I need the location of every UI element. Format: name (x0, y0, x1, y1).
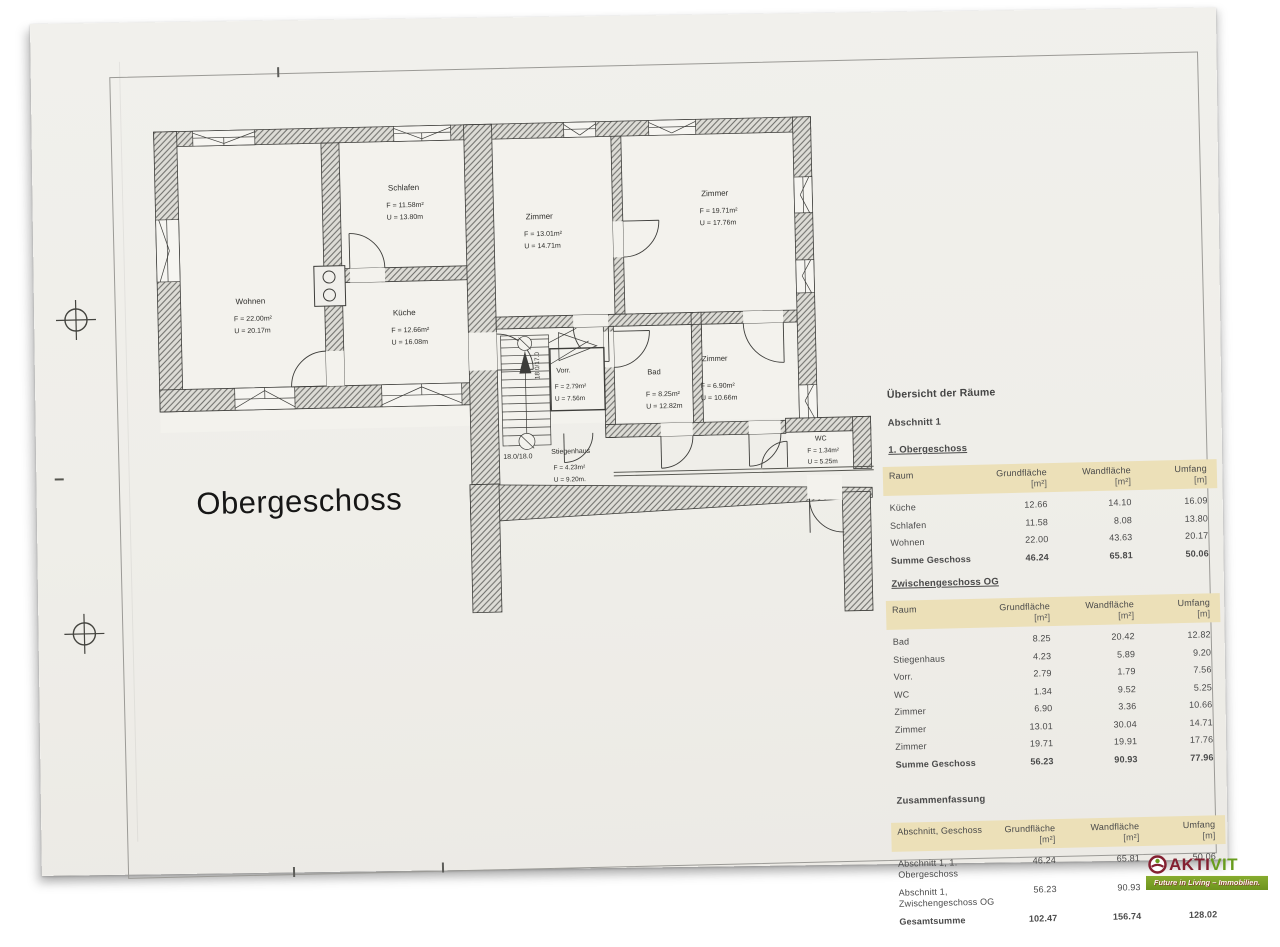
svg-text:U = 7.56m: U = 7.56m (555, 395, 585, 403)
col-unit: [m²] (1003, 834, 1055, 846)
scanned-paper-sheet: 18.0/18.0 18.0/17.0 Wohnen F = 22.00m² U… (30, 7, 1228, 875)
cell-room: Stiegenhaus (893, 652, 997, 665)
registration-mark (62, 611, 107, 656)
svg-text:U = 10.66m: U = 10.66m (701, 394, 738, 402)
cell-abschnitt: Gesamtsumme (899, 914, 1003, 927)
cell-room: Küche (890, 500, 994, 513)
cell-wandflaeche: 8.08 (1050, 515, 1132, 527)
cell-grundflaeche: 11.58 (996, 517, 1048, 529)
cell-wandflaeche: 1.79 (1053, 666, 1135, 678)
cell-wandflaeche: 65.81 (1051, 550, 1133, 562)
cell-grundflaeche: 46.24 (997, 552, 1049, 564)
cell-wandflaeche: 3.36 (1054, 701, 1136, 713)
svg-text:F = 22.00m²: F = 22.00m² (234, 315, 273, 323)
cell-umfang: 12.82 (1137, 629, 1211, 641)
table-row: Schlafen 11.58 8.08 13.80 (890, 513, 1212, 531)
svg-text:F = 1.34m²: F = 1.34m² (807, 447, 840, 455)
svg-text:U = 14.71m: U = 14.71m (524, 243, 561, 251)
col-unit: [m²] (995, 478, 1047, 490)
cell-umfang: 9.20 (1137, 647, 1211, 659)
cell-umfang: 50.06 (1135, 548, 1209, 560)
cell-umfang: 17.76 (1139, 734, 1213, 746)
col-unit: [m] (1136, 608, 1210, 621)
col-unit: [m²] (998, 612, 1050, 624)
svg-text:U = 20.17m: U = 20.17m (234, 327, 271, 335)
brand-text-akti: AKTI (1169, 855, 1210, 874)
cell-room: Schlafen (890, 518, 994, 531)
cell-wandflaeche: 19.91 (1055, 736, 1137, 748)
cell-room: Wohnen (890, 535, 994, 548)
logo-wordmark: AKTIVIT (1146, 855, 1276, 874)
cell-grundflaeche: 56.23 (1002, 756, 1054, 768)
table-header-row: Raum Grundfläche Wandfläche Umfang [m²] … (886, 593, 1221, 630)
svg-text:Zimmer: Zimmer (526, 212, 554, 222)
chimney-block (314, 266, 346, 307)
cell-grundflaeche: 13.01 (1001, 721, 1053, 733)
svg-text:U = 13.80m: U = 13.80m (387, 214, 424, 222)
svg-text:F = 12.66m²: F = 12.66m² (391, 327, 430, 335)
svg-text:F = 11.58m²: F = 11.58m² (386, 202, 424, 210)
cell-umfang: 77.96 (1139, 752, 1213, 764)
cell-grundflaeche: 102.47 (1005, 913, 1057, 925)
svg-text:Stiegenhaus: Stiegenhaus (551, 448, 591, 456)
cell-umfang: 7.56 (1137, 664, 1211, 676)
cell-room: Bad (893, 634, 997, 647)
cell-wandflaeche: 65.81 (1058, 853, 1140, 877)
section-label: Abschnitt 1 (888, 410, 1210, 429)
svg-text:F = 4.23m²: F = 4.23m² (554, 464, 587, 472)
cell-grundflaeche: 56.23 (1005, 884, 1058, 907)
table-row: Wohnen 22.00 43.63 20.17 (890, 530, 1212, 548)
frame-tick (293, 867, 295, 877)
cell-grundflaeche: 1.34 (1000, 686, 1052, 698)
svg-text:F = 19.71m²: F = 19.71m² (700, 207, 739, 215)
cell-grundflaeche: 2.79 (999, 668, 1051, 680)
frame-tick (277, 67, 279, 77)
cell-umfang: 20.17 (1134, 530, 1208, 542)
cell-room: Zimmer (895, 722, 999, 735)
table-row: Küche 12.66 14.10 16.09 (890, 495, 1212, 513)
table-header-row: Abschnitt, Geschoss Grundfläche Wandfläc… (891, 815, 1226, 852)
room-overview-panel: Übersicht der Räume Abschnitt 1 1. Oberg… (887, 381, 1222, 927)
svg-text:Bad: Bad (647, 367, 661, 376)
cell-room: Zimmer (895, 739, 999, 752)
cell-room: Zimmer (894, 704, 998, 717)
table-row: Vorr. 2.79 1.79 7.56 (894, 664, 1216, 682)
room-label-stiegenhaus: Stiegenhaus F = 4.23m² U = 9.20m. (551, 448, 591, 484)
table-row: Zimmer 13.01 30.04 14.71 (895, 717, 1217, 735)
col-unit: [m²] (1052, 610, 1134, 623)
table-row: Bad 8.25 20.42 12.82 (893, 629, 1215, 647)
svg-text:Zimmer: Zimmer (701, 189, 729, 199)
table-header-row: Raum Grundfläche Wandfläche Umfang [m²] … (883, 459, 1218, 496)
svg-text:Küche: Küche (393, 308, 416, 318)
cell-umfang: 16.09 (1133, 495, 1207, 507)
frame-tick (442, 862, 444, 872)
cell-wandflaeche: 156.74 (1059, 911, 1141, 923)
stairs-side-dimension-label: 18.0/17.0 (534, 352, 542, 380)
floor-plan-drawing: 18.0/18.0 18.0/17.0 Wohnen F = 22.00m² U… (143, 103, 890, 635)
cell-grundflaeche: 4.23 (999, 651, 1051, 663)
aktivit-person-icon (1148, 855, 1167, 874)
cell-grundflaeche: 19.71 (1001, 738, 1053, 750)
drawing-content: 18.0/18.0 18.0/17.0 Wohnen F = 22.00m² U… (30, 0, 1236, 876)
col-unit: [m] (1133, 474, 1207, 487)
svg-text:Schlafen: Schlafen (388, 183, 419, 193)
cell-umfang: 5.25 (1138, 682, 1212, 694)
floor-title: Obergeschoss (196, 481, 403, 522)
table-sum-row: Gesamtsumme 102.47 156.74 128.02 (899, 909, 1221, 927)
cell-wandflaeche: 14.10 (1049, 497, 1131, 509)
cell-grundflaeche: 8.25 (999, 633, 1051, 645)
brand-text-vit: VIT (1210, 855, 1238, 874)
svg-text:U = 9.20m.: U = 9.20m. (554, 476, 586, 484)
svg-text:F = 6.90m²: F = 6.90m² (701, 382, 736, 390)
cell-wandflaeche: 20.42 (1053, 631, 1135, 643)
svg-text:U = 17.76m: U = 17.76m (700, 219, 737, 227)
scanned-floorplan-page: { "plan": { "title": "Obergeschoss", "ro… (0, 0, 1280, 905)
svg-text:U = 12.82m: U = 12.82m (646, 403, 683, 411)
col-unit: [m²] (1057, 832, 1139, 845)
col-unit: [m] (1141, 830, 1215, 843)
table-row: Stiegenhaus 4.23 5.89 9.20 (893, 647, 1215, 665)
svg-text:F = 2.79m²: F = 2.79m² (555, 383, 588, 391)
svg-text:WC: WC (815, 435, 827, 442)
col-unit: [m²] (1049, 476, 1131, 489)
logo-tagline: Future in Living – Immobilien. (1146, 875, 1268, 890)
stairs-dimension-label: 18.0/18.0 (503, 453, 532, 461)
room-label-schlafen: Schlafen F = 11.58m² U = 13.80m (386, 183, 425, 222)
svg-text:U = 16.08m: U = 16.08m (392, 339, 429, 347)
cell-umfang: 13.80 (1134, 513, 1208, 525)
cell-wandflaeche: 5.89 (1053, 649, 1135, 661)
cell-abschnitt: Abschnitt 1, Zwischengeschoss OG (899, 885, 1003, 909)
cell-grundflaeche: 6.90 (1000, 703, 1052, 715)
cell-wandflaeche: 43.63 (1050, 532, 1132, 544)
cell-room: Vorr. (894, 669, 998, 682)
cell-room: WC (894, 687, 998, 700)
cell-wandflaeche: 9.52 (1054, 684, 1136, 696)
cell-grundflaeche: 22.00 (996, 534, 1048, 546)
svg-text:F = 13.01m²: F = 13.01m² (524, 231, 563, 239)
svg-text:F = 8.25m²: F = 8.25m² (646, 391, 681, 399)
cell-umfang: 128.02 (1143, 909, 1217, 921)
cell-abschnitt: Abschnitt 1, 1. Obergeschoss (898, 856, 1002, 880)
svg-text:Wohnen: Wohnen (235, 297, 265, 307)
cell-grundflaeche: 12.66 (995, 499, 1047, 511)
table-row: WC 1.34 9.52 5.25 (894, 682, 1216, 700)
margin-dash-mark (55, 478, 64, 480)
registration-mark (53, 297, 98, 342)
table-heading-obergeschoss: 1. Obergeschoss (888, 437, 1210, 456)
aktivit-logo: AKTIVIT Future in Living – Immobilien. (1146, 855, 1276, 903)
cell-umfang: 14.71 (1139, 717, 1213, 729)
table-row: Zimmer 19.71 19.91 17.76 (895, 734, 1217, 752)
cell-umfang: 10.66 (1138, 699, 1212, 711)
cell-wandflaeche: 90.93 (1059, 882, 1141, 906)
svg-text:U = 5.25m: U = 5.25m (807, 458, 837, 466)
cell-wandflaeche: 30.04 (1055, 719, 1137, 731)
svg-text:Vorr.: Vorr. (556, 367, 571, 374)
svg-text:Zimmer: Zimmer (702, 354, 728, 364)
cell-wandflaeche: 90.93 (1056, 754, 1138, 766)
cell-grundflaeche: 46.24 (1004, 855, 1057, 878)
table-row: Zimmer 6.90 3.36 10.66 (894, 699, 1216, 717)
